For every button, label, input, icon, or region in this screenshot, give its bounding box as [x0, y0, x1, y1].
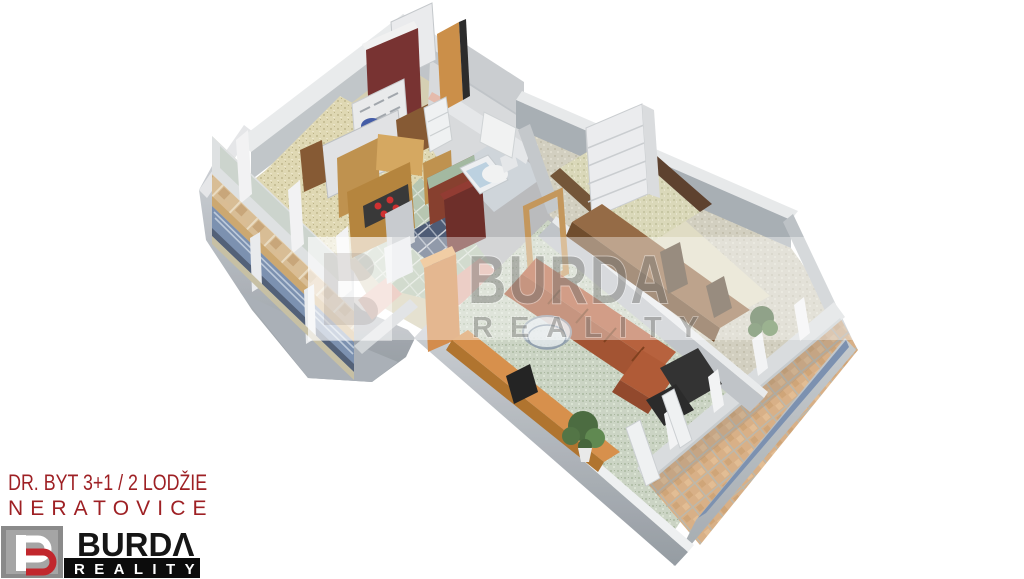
svg-text:REALITY: REALITY: [74, 561, 204, 578]
svg-text:BURDA: BURDA: [468, 242, 671, 318]
svg-text:NERATOVICE: NERATOVICE: [8, 497, 214, 520]
svg-text:REALITY: REALITY: [472, 312, 715, 344]
svg-text:DR. BYT 3+1 / 2 LODŽIE: DR. BYT 3+1 / 2 LODŽIE: [8, 470, 207, 495]
svg-text:BURDΛ: BURDΛ: [77, 526, 194, 563]
